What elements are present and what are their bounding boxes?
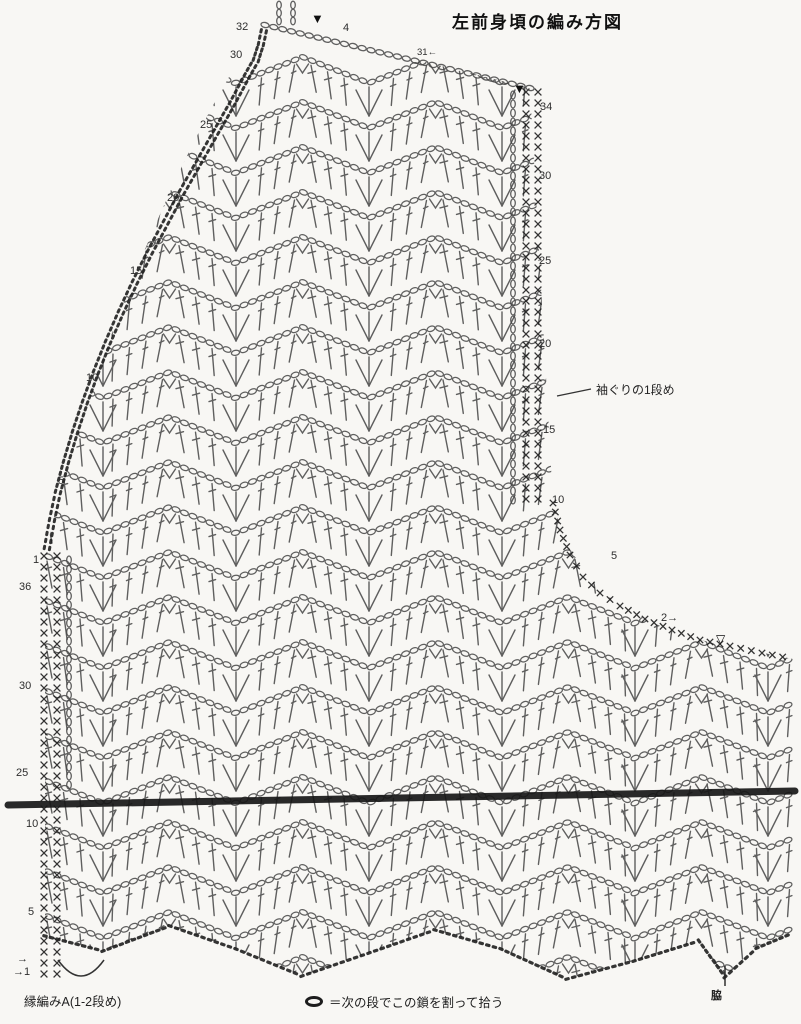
page-title: 左前身頃の編み方図 xyxy=(452,8,623,33)
row-number: 32 xyxy=(236,22,248,33)
row-number: 2→ xyxy=(661,613,678,624)
edging-label: 縁編みA(1-2段め) xyxy=(24,991,121,1010)
pattern-sheet: 左前身頃の編み方図 袖ぐりの1段め ＝次の段でこの鎖を割って拾う 縁編みA(1-… xyxy=(0,0,801,1024)
row-number: 10 xyxy=(86,373,98,384)
row-number: 5 xyxy=(611,551,617,562)
filled-triangle-marker: ▼ xyxy=(513,82,526,95)
filled-triangle-marker: ▼ xyxy=(311,12,324,25)
row-number: 25 xyxy=(539,256,551,267)
chain-oval-icon xyxy=(305,996,323,1007)
row-number: 10 xyxy=(552,495,564,506)
row-number: 4 xyxy=(343,23,349,34)
row-number: 36 xyxy=(19,582,31,593)
legend-text: ＝次の段でこの鎖を割って拾う xyxy=(329,992,503,1011)
row-number: →1 xyxy=(13,967,30,978)
row-number: 30 xyxy=(19,681,31,692)
row-number: 1 xyxy=(33,555,39,566)
armhole-annotation: 袖ぐりの1段め xyxy=(596,381,675,398)
crochet-diagram xyxy=(0,0,801,1024)
row-number: 20 xyxy=(167,193,179,204)
open-triangle-marker: ▽ xyxy=(716,633,725,645)
row-number: → xyxy=(17,954,28,965)
row-number: 5 xyxy=(58,476,64,487)
row-number: 25 xyxy=(200,120,212,131)
row-number: 30 xyxy=(230,50,242,61)
row-number: 15 xyxy=(130,266,142,277)
legend: ＝次の段でこの鎖を割って拾う xyxy=(305,992,503,1011)
row-number: 31← xyxy=(417,48,437,58)
row-number: 15 xyxy=(543,425,555,436)
row-number: 10 xyxy=(26,819,38,830)
row-number: 25 xyxy=(16,768,28,779)
row-number: 34 xyxy=(540,102,552,113)
side-label: 脇 xyxy=(711,987,722,1003)
row-number: 5 xyxy=(28,907,34,918)
row-number: 20 xyxy=(539,339,551,350)
row-number: 30 xyxy=(539,171,551,182)
